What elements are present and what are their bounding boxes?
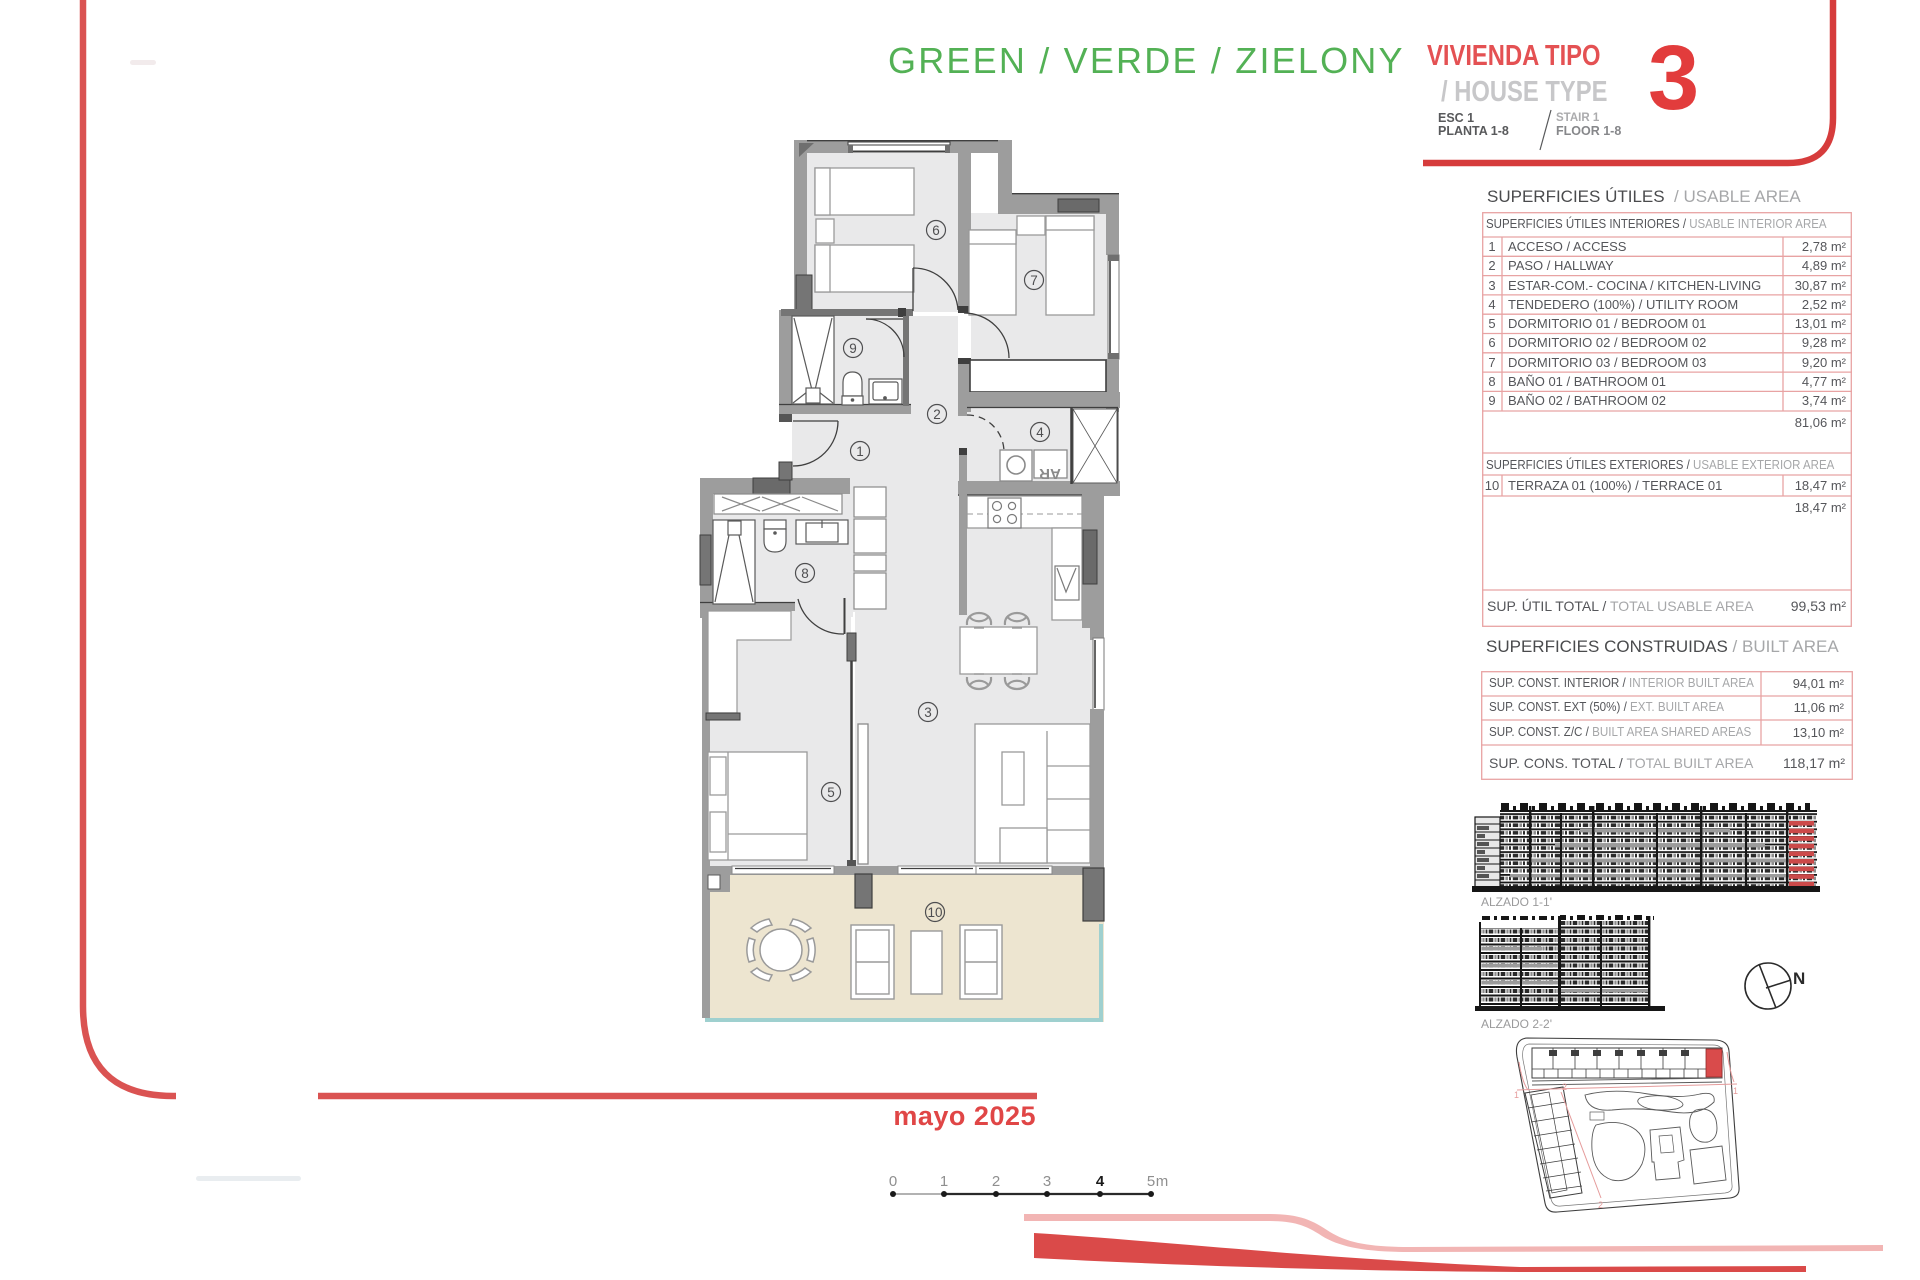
svg-text:6: 6	[932, 223, 940, 238]
svg-text:9: 9	[849, 341, 857, 356]
svg-text:2: 2	[933, 407, 941, 422]
svg-text:3: 3	[924, 705, 932, 720]
svg-text:1: 1	[1733, 1086, 1738, 1096]
svg-text:4: 4	[1036, 425, 1044, 440]
svg-text:2: 2	[1562, 1082, 1567, 1092]
svg-text:1: 1	[1514, 1090, 1519, 1100]
svg-text:2: 2	[992, 1173, 1000, 1190]
svg-text:5: 5	[827, 785, 835, 800]
svg-text:m: m	[1156, 1173, 1169, 1190]
svg-text:2: 2	[1598, 1200, 1603, 1210]
svg-text:4: 4	[1096, 1173, 1105, 1190]
svg-text:ALZADO 2-2': ALZADO 2-2'	[1481, 1017, 1552, 1031]
svg-text:10: 10	[927, 905, 942, 920]
svg-text:3: 3	[1043, 1173, 1051, 1190]
svg-text:7: 7	[1030, 273, 1038, 288]
svg-text:0: 0	[889, 1173, 897, 1190]
svg-text:1: 1	[856, 444, 864, 459]
svg-text:8: 8	[801, 566, 809, 581]
svg-text:N: N	[1793, 969, 1805, 988]
svg-text:AR: AR	[1039, 465, 1061, 482]
svg-text:5: 5	[1147, 1173, 1155, 1190]
svg-text:1: 1	[940, 1173, 948, 1190]
svg-text:ALZADO 1-1': ALZADO 1-1'	[1481, 895, 1552, 909]
